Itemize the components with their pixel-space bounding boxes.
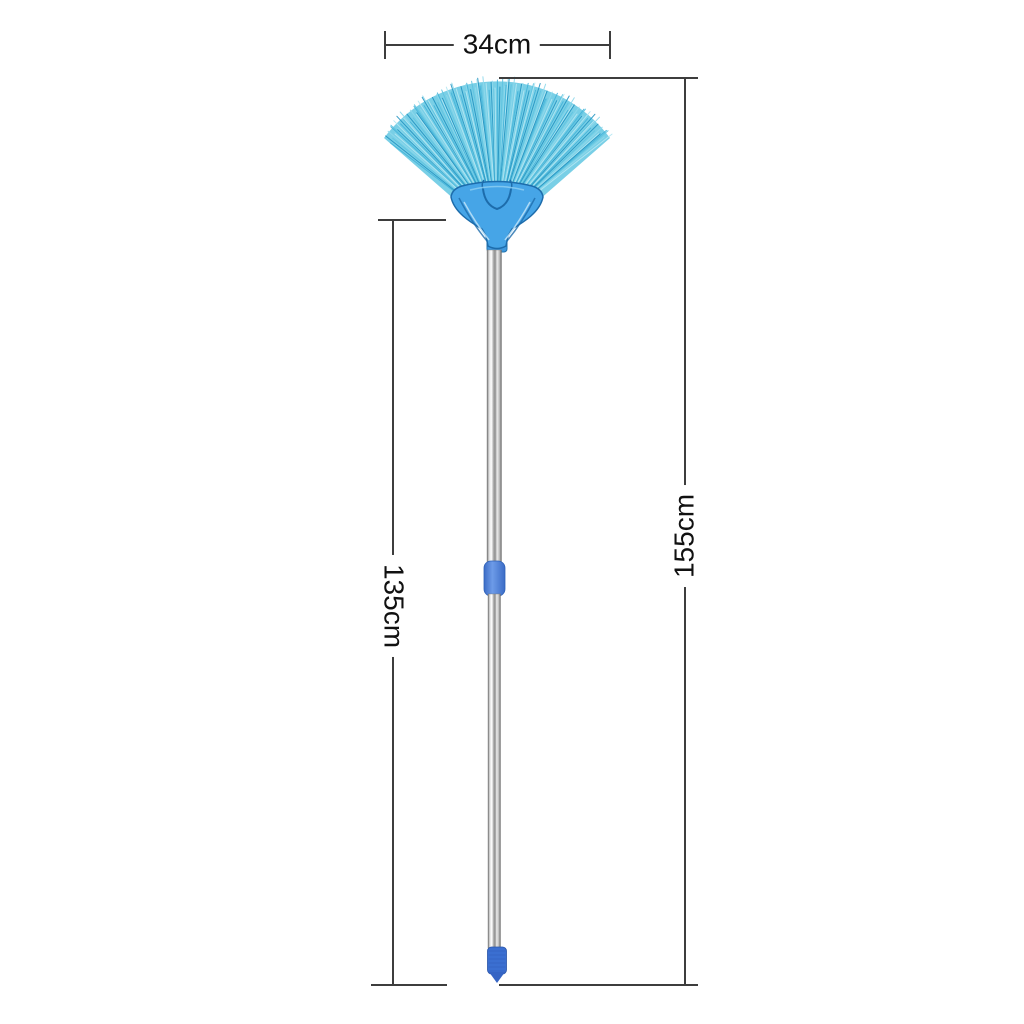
telescopic-collar <box>484 561 505 596</box>
handle-dimension-tick-top <box>378 219 446 221</box>
broom-head <box>451 180 543 249</box>
width-dimension-label: 34cm <box>454 30 540 61</box>
product-image-canvas: 34cm 155cm 135cm <box>0 0 1024 1024</box>
width-dimension-tick-left <box>384 31 386 59</box>
height-dimension-tick-top <box>499 77 698 79</box>
broom-grip <box>488 947 507 983</box>
height-dimension-label: 155cm <box>670 485 701 587</box>
handle-dimension-tick-bottom <box>371 984 447 986</box>
broom-pole-lower <box>488 594 501 948</box>
handle-dimension-label: 135cm <box>378 555 409 657</box>
width-dimension-tick-right <box>609 31 611 59</box>
broom-product-photo <box>0 0 1024 1024</box>
height-dimension-tick-bottom <box>499 984 698 986</box>
broom-pole-upper <box>487 250 502 563</box>
